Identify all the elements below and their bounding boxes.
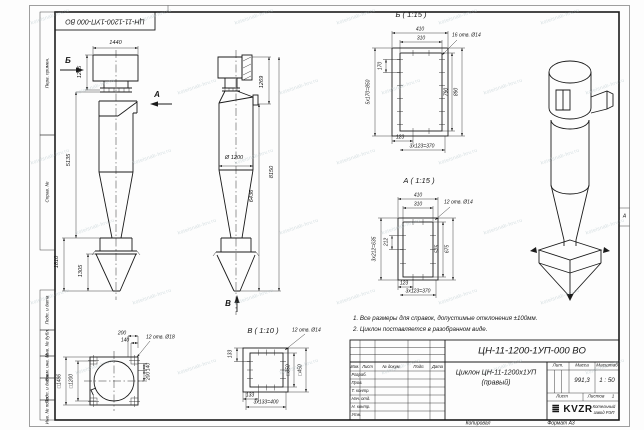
drawing-sheet: kotelsnab-hrv.rukotelsnab-hrv.rukotelsna…: [0, 0, 644, 430]
tb-header-doc: № докум.: [382, 364, 400, 368]
top-view-dim-140-right: 140: [147, 363, 152, 371]
view-b-dim-790: 790: [445, 88, 450, 96]
view-v-title: В ( 1:10 ): [247, 327, 278, 335]
top-view-dim-1200: □1200: [70, 374, 75, 388]
tb-row-nach-otd: Нач. отд.: [352, 397, 371, 401]
view-a-dim-310: 310: [414, 202, 422, 207]
dim-1269: 1269: [260, 76, 266, 88]
view-arrow-label-b: Б: [65, 57, 71, 65]
view-a-dim-410: 410: [414, 193, 422, 198]
top-view-dim-200: 200: [118, 331, 126, 336]
flange-view-b-linework: [372, 31, 465, 153]
company-name-line2: завод РЭП: [594, 411, 615, 415]
view-a-dim-212: 212: [385, 238, 390, 246]
tb-lit-label: Лит.: [553, 364, 564, 369]
dim-1305: 1305: [79, 265, 85, 277]
tb-row-n-kontr: Н. контр.: [352, 405, 371, 409]
dim-1205: 1205: [78, 66, 84, 78]
company-logo-bars-icon: ≣: [552, 405, 561, 415]
dim-6436: 6436: [250, 190, 256, 202]
view-a-dim-123: 123: [400, 281, 408, 286]
company-logo-text: KVZR: [563, 405, 592, 415]
middle-view-linework: [213, 50, 281, 315]
dim-8150: 8150: [270, 166, 276, 178]
zone-letter: А: [623, 215, 626, 220]
dim-1440: 1440: [109, 41, 121, 47]
view-b-dim-310: 310: [417, 36, 425, 41]
tb-row-razrab: Разраб.: [352, 373, 367, 377]
view-v-dim-400: 3х133=400: [254, 401, 279, 406]
tb-listov-value: 1: [612, 395, 615, 400]
tb-listov-label: Листов: [588, 395, 605, 400]
title-block-name-line2: (правый): [482, 380, 511, 387]
title-block-doc-number: ЦН-11-1200-1УП-000 ВО: [478, 346, 586, 356]
view-b-dim-370: 3х123=370: [410, 144, 435, 149]
top-view-dim-1486: □1486: [58, 374, 63, 388]
view-b-dim-850: 5х170=850: [367, 80, 372, 105]
view-a-dim-575: 575: [436, 245, 441, 253]
view-b-holes-note: 16 отв. Ø14: [452, 34, 481, 39]
tb-massa-label: Масса: [575, 364, 589, 369]
isometric-view-linework: [530, 61, 613, 301]
margin-label-sprav-no: Справ. №: [45, 182, 50, 203]
copied-label: Копировал: [466, 421, 491, 426]
margin-label-inv-podl: Инв. № подл.: [45, 396, 50, 425]
company-name-line1: Котельный: [593, 405, 616, 409]
tb-list-label: Лист: [556, 395, 568, 400]
margin-label-podp-data-1: Подп. и дата: [45, 296, 50, 325]
title-block-name-line1: Циклон ЦН-11-1200х1УП: [456, 370, 537, 377]
dim-1810: 1810: [55, 256, 61, 268]
tb-row-t-kontr: Т. контр.: [352, 389, 370, 393]
tb-row-prov: Пров.: [352, 381, 363, 385]
tb-massa-value: 991,3: [574, 378, 589, 384]
tb-header-izm: Изм.: [351, 364, 360, 368]
view-b-dim-410: 410: [416, 27, 424, 32]
tb-masshtab-value: 1 : 50: [599, 378, 614, 384]
top-view-linework: [63, 336, 150, 411]
view-v-holes-note: 12 отв. Ø14: [292, 329, 321, 334]
view-v-dim-450: □450: [299, 364, 304, 375]
view-arrow-label-v: В: [225, 300, 231, 308]
top-view-dim-140: 140: [121, 338, 129, 343]
tb-masshtab-label: Масштаб: [596, 364, 617, 369]
tb-header-list: Лист: [362, 364, 373, 368]
top-view-holes-note: 12 отв. Ø18: [146, 336, 175, 341]
view-a-holes-note: 12 отв. Ø14: [444, 201, 473, 206]
view-b-dim-123: 123: [396, 135, 404, 140]
view-v-dim-133-left: 133: [229, 350, 234, 358]
view-v-dim-133-bottom: 133: [246, 393, 254, 398]
tb-header-data: Дата: [432, 364, 443, 368]
view-v-dim-350: □350: [287, 364, 292, 375]
margin-label-perv-primen: Перв. примен.: [45, 58, 50, 89]
view-a-dim-370: 3х123=370: [406, 289, 431, 294]
view-a-dim-635: 3х212=635: [373, 237, 378, 262]
top-corner-doc-number: ЦН-11-1200-1УП-000 ВО: [65, 18, 144, 25]
view-b-dim-170: 170: [379, 62, 384, 70]
view-arrow-label-a: А: [154, 91, 160, 99]
sheet-frame: [30, 6, 630, 427]
view-a-dim-675: 675: [446, 245, 451, 253]
dim-5135: 5135: [67, 154, 73, 166]
format-label: Формат А3: [547, 421, 574, 426]
front-view-linework: [60, 46, 172, 300]
view-a-title: А ( 1:15 ): [403, 177, 434, 185]
top-view-dim-200-right: 200: [147, 372, 152, 380]
dim-diameter-1200: Ø 1200: [225, 156, 243, 162]
view-b-dim-890: 890: [455, 88, 460, 96]
note-line-2: 2. Циклон поставляется в разобранном вид…: [353, 327, 487, 333]
note-line-1: 1. Все размеры для справок, допустимые о…: [353, 316, 538, 322]
tb-row-utv: Утв.: [352, 413, 362, 417]
drawing-linework: [0, 0, 644, 430]
tb-header-podp: Подп.: [413, 364, 424, 368]
view-b-title: Б ( 1:15 ): [395, 11, 426, 19]
